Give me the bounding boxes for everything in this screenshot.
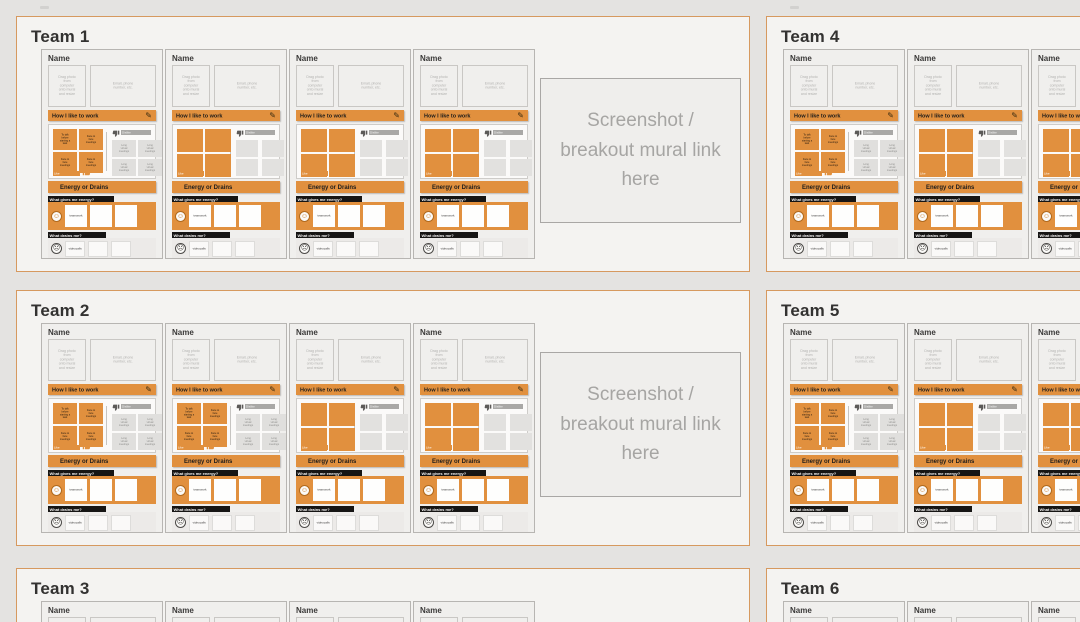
photo-dropzone[interactable]: Drag photo from computer onto mural and …	[48, 617, 86, 622]
dislike-sticky[interactable]: Long virtual meetings	[138, 140, 162, 157]
photo-dropzone[interactable]: Drag photo from computer onto mural and …	[914, 617, 952, 622]
how-i-like-to-work-bar[interactable]: How I like to work ✎	[420, 384, 528, 395]
member-card[interactable]: Name Drag photo from computer onto mural…	[165, 601, 287, 622]
like-sticky[interactable]: Face to face meetings	[821, 129, 845, 150]
work-preferences-panel[interactable]: To talk before starting a task Face to f…	[48, 124, 156, 179]
card-name-label[interactable]: Name	[48, 328, 156, 337]
thumbs-down-icon	[484, 404, 492, 412]
card-name-label[interactable]: Name	[790, 328, 898, 337]
dislike-sticky[interactable]: Long virtual meetings	[138, 414, 162, 431]
drain-sticky[interactable]	[460, 515, 480, 531]
drain-sticky[interactable]	[977, 515, 997, 531]
photo-dropzone[interactable]: Drag photo from computer onto mural and …	[790, 617, 828, 622]
card-name-label[interactable]: Name	[420, 54, 528, 63]
energy-sticky[interactable]	[956, 205, 978, 227]
energy-or-drains-bar[interactable]: Energy or Drains	[914, 181, 1022, 193]
dislike-label-bar: Dislike	[245, 130, 275, 135]
dislike-sticky[interactable]	[386, 433, 408, 450]
card-name-label[interactable]: Name	[1038, 606, 1080, 615]
member-card[interactable]: Name Drag photo from computer onto mural…	[907, 601, 1029, 622]
drain-sticky[interactable]	[88, 241, 108, 257]
like-legend: Like	[425, 167, 463, 176]
how-i-like-to-work-bar[interactable]: How I like to work ✎	[172, 110, 280, 121]
contact-field[interactable]: Email, phone number, etc.	[956, 339, 1022, 381]
dislike-label-bar: Dislike	[245, 404, 275, 409]
dislike-sticky[interactable]: Long virtual meetings	[880, 140, 904, 157]
like-sticky[interactable]	[329, 129, 355, 152]
dislike-sticky[interactable]	[386, 140, 408, 157]
energy-sticky[interactable]: teamwork	[931, 479, 953, 501]
card-name-label[interactable]: Name	[48, 606, 156, 615]
dislike-sticky[interactable]: Long virtual meetings	[262, 414, 286, 431]
contact-field[interactable]: Email, phone number, etc.	[214, 65, 280, 107]
card-name-label[interactable]: Name	[420, 328, 528, 337]
drain-sticky[interactable]: videocalls	[437, 241, 457, 257]
dislike-sticky[interactable]	[978, 140, 1000, 157]
energy-sticky[interactable]	[832, 479, 854, 501]
like-sticky[interactable]: Face to face meetings	[79, 129, 103, 150]
drain-sticky[interactable]	[853, 241, 873, 257]
card-name-label[interactable]: Name	[1038, 54, 1080, 63]
drain-panel: ☹ videocalls	[48, 512, 156, 533]
like-sticky[interactable]	[425, 403, 451, 426]
member-card[interactable]: Name Drag photo from computer onto mural…	[165, 49, 287, 259]
photo-dropzone[interactable]: Drag photo from computer onto mural and …	[420, 339, 458, 381]
member-card[interactable]: Name Drag photo from computer onto mural…	[289, 323, 411, 533]
screenshot-link-placeholder[interactable]: Screenshot / breakout mural link here	[540, 352, 741, 497]
card-name-label[interactable]: Name	[914, 328, 1022, 337]
drain-sticky[interactable]	[853, 515, 873, 531]
card-name-label[interactable]: Name	[296, 54, 404, 63]
like-sticky[interactable]: To talk before starting a task	[53, 129, 77, 150]
contact-field[interactable]: Email, phone number, etc.	[90, 617, 156, 622]
drain-sticky[interactable]	[359, 515, 379, 531]
drain-sticky[interactable]	[483, 515, 503, 531]
energy-sticky[interactable]	[214, 205, 236, 227]
dislike-sticky[interactable]	[360, 433, 382, 450]
like-sticky[interactable]	[1071, 129, 1080, 152]
dislike-sticky[interactable]	[262, 140, 284, 157]
photo-dropzone[interactable]: Drag photo from computer onto mural and …	[296, 617, 334, 622]
dislike-sticky[interactable]	[484, 159, 506, 176]
energy-sticky[interactable]	[214, 479, 236, 501]
member-card[interactable]: Name Drag photo from computer onto mural…	[1031, 49, 1080, 259]
like-sticky[interactable]	[919, 129, 945, 152]
how-i-like-to-work-bar[interactable]: How I like to work ✎	[296, 110, 404, 121]
contact-field[interactable]: Email, phone number, etc.	[338, 339, 404, 381]
energy-sticky[interactable]	[981, 205, 1003, 227]
dislike-sticky[interactable]: Long virtual meetings	[112, 433, 136, 450]
energy-sticky[interactable]	[956, 479, 978, 501]
like-sticky[interactable]	[1043, 129, 1069, 152]
energy-sticky[interactable]: teamwork	[1055, 479, 1077, 501]
card-name-label[interactable]: Name	[790, 54, 898, 63]
member-card[interactable]: Name Drag photo from computer onto mural…	[413, 323, 535, 533]
work-preferences-panel[interactable]: To talk before starting a task Face to f…	[172, 398, 280, 453]
photo-dropzone[interactable]: Drag photo from computer onto mural and …	[1038, 65, 1076, 107]
energy-or-drains-bar[interactable]: Energy or Drains	[420, 455, 528, 467]
energy-sticky[interactable]: teamwork	[807, 479, 829, 501]
photo-dropzone[interactable]: Drag photo from computer onto mural and …	[790, 339, 828, 381]
drain-sticky[interactable]	[88, 515, 108, 531]
photo-dropzone[interactable]: Drag photo from computer onto mural and …	[296, 65, 334, 107]
how-i-like-to-work-bar[interactable]: How I like to work ✎	[1038, 110, 1080, 121]
energy-sticky[interactable]	[462, 205, 484, 227]
dislike-sticky[interactable]: Long virtual meetings	[112, 140, 136, 157]
contact-field[interactable]: Email, phone number, etc.	[90, 65, 156, 107]
member-card[interactable]: Name Drag photo from computer onto mural…	[1031, 601, 1080, 622]
photo-dropzone[interactable]: Drag photo from computer onto mural and …	[914, 65, 952, 107]
drain-sticky[interactable]	[359, 241, 379, 257]
contact-field[interactable]: Email, phone number, etc.	[832, 65, 898, 107]
contact-field[interactable]: Email, phone number, etc.	[832, 339, 898, 381]
like-sticky[interactable]: To talk before starting a task	[177, 403, 201, 424]
energy-sticky[interactable]	[115, 205, 137, 227]
member-card[interactable]: Name Drag photo from computer onto mural…	[907, 323, 1029, 533]
energy-sticky[interactable]: teamwork	[189, 479, 211, 501]
work-preferences-panel[interactable]: Like Dislike	[420, 124, 528, 179]
contact-field[interactable]: Email, phone number, etc.	[832, 617, 898, 622]
energy-sticky[interactable]: teamwork	[189, 205, 211, 227]
card-name-label[interactable]: Name	[172, 606, 280, 615]
contact-field[interactable]: Email, phone number, etc.	[214, 617, 280, 622]
member-card[interactable]: Name Drag photo from computer onto mural…	[41, 49, 163, 259]
contact-field[interactable]: Email, phone number, etc.	[338, 65, 404, 107]
dislike-sticky[interactable]	[978, 159, 1000, 176]
energy-sticky[interactable]	[487, 205, 509, 227]
like-sticky[interactable]: Face to face meetings	[203, 403, 227, 424]
energy-sticky[interactable]	[487, 479, 509, 501]
energy-sticky[interactable]	[239, 479, 261, 501]
energy-sticky[interactable]	[338, 205, 360, 227]
work-preferences-panel[interactable]: Like Dislike	[296, 124, 404, 179]
energy-or-drains-bar[interactable]: Energy or Drains	[1038, 455, 1080, 467]
member-card[interactable]: Name Drag photo from computer onto mural…	[1031, 323, 1080, 533]
work-preferences-panel[interactable]: To talk before starting a task Face to f…	[790, 398, 898, 453]
photo-dropzone[interactable]: Drag photo from computer onto mural and …	[48, 65, 86, 107]
dislike-sticky[interactable]	[236, 159, 258, 176]
drain-sticky[interactable]: videocalls	[65, 241, 85, 257]
drain-sticky[interactable]: videocalls	[189, 515, 209, 531]
energy-or-drains-bar[interactable]: Energy or Drains	[914, 455, 1022, 467]
work-preferences-panel[interactable]: Like Dislike	[1038, 398, 1080, 453]
dislike-sticky[interactable]	[1004, 433, 1026, 450]
energy-sticky[interactable]	[857, 479, 879, 501]
frown-icon: ☹	[917, 243, 928, 254]
team-title[interactable]: Team 3	[31, 579, 90, 599]
drain-sticky[interactable]: videocalls	[65, 515, 85, 531]
drain-sticky[interactable]	[235, 241, 255, 257]
member-card[interactable]: Name Drag photo from computer onto mural…	[165, 323, 287, 533]
dislike-sticky[interactable]	[484, 414, 506, 431]
energy-sticky[interactable]	[239, 205, 261, 227]
dislike-sticky[interactable]	[360, 140, 382, 157]
card-name-label[interactable]: Name	[172, 328, 280, 337]
dislike-sticky[interactable]	[510, 433, 532, 450]
energy-sticky[interactable]	[363, 479, 385, 501]
like-sticky[interactable]	[453, 403, 479, 426]
like-sticky[interactable]	[947, 129, 973, 152]
like-sticky[interactable]	[919, 403, 945, 426]
dislike-sticky[interactable]	[386, 159, 408, 176]
like-sticky[interactable]	[329, 403, 355, 426]
drain-sticky[interactable]	[483, 241, 503, 257]
drain-sticky[interactable]	[111, 241, 131, 257]
dislike-label-bar: Dislike	[121, 130, 151, 135]
like-sticky[interactable]	[425, 129, 451, 152]
how-i-like-to-work-bar[interactable]: How I like to work ✎	[172, 384, 280, 395]
how-i-like-to-work-bar[interactable]: How I like to work ✎	[790, 110, 898, 121]
photo-dropzone[interactable]: Drag photo from computer onto mural and …	[914, 339, 952, 381]
dislike-sticky[interactable]	[978, 433, 1000, 450]
drain-sticky[interactable]	[111, 515, 131, 531]
drain-sticky[interactable]	[336, 515, 356, 531]
energy-or-drains-label: Energy or Drains	[1050, 184, 1080, 191]
energy-or-drains-bar[interactable]: Energy or Drains	[172, 181, 280, 193]
drain-sticky[interactable]	[235, 515, 255, 531]
member-card[interactable]: Name Drag photo from computer onto mural…	[41, 601, 163, 622]
dislike-sticky[interactable]	[510, 140, 532, 157]
energy-question-bar[interactable]: What gives me energy?	[1038, 196, 1080, 202]
like-sticky[interactable]: Face to face meetings	[821, 403, 845, 424]
contact-field[interactable]: Email, phone number, etc.	[462, 339, 528, 381]
like-legend: Like	[53, 441, 91, 450]
dislike-sticky[interactable]	[510, 414, 532, 431]
how-i-like-to-work-bar[interactable]: How I like to work ✎	[790, 384, 898, 395]
card-name-label[interactable]: Name	[1038, 328, 1080, 337]
energy-or-drains-bar[interactable]: Energy or Drains	[296, 455, 404, 467]
energy-question-bar[interactable]: What gives me energy?	[1038, 470, 1080, 476]
member-card[interactable]: Name Drag photo from computer onto mural…	[41, 323, 163, 533]
photo-dropzone[interactable]: Drag photo from computer onto mural and …	[172, 617, 210, 622]
how-i-like-to-work-bar[interactable]: How I like to work ✎	[48, 110, 156, 121]
drain-sticky[interactable]	[977, 241, 997, 257]
photo-dropzone[interactable]: Drag photo from computer onto mural and …	[1038, 617, 1076, 622]
work-preferences-panel[interactable]: Like Dislike	[172, 124, 280, 179]
drain-sticky[interactable]: videocalls	[807, 241, 827, 257]
work-preferences-panel[interactable]: Like Dislike	[914, 124, 1022, 179]
how-i-like-to-work-bar[interactable]: How I like to work ✎	[48, 384, 156, 395]
energy-sticky[interactable]: teamwork	[437, 205, 459, 227]
card-name-label[interactable]: Name	[914, 606, 1022, 615]
team-title[interactable]: Team 2	[31, 301, 90, 321]
photo-dropzone[interactable]: Drag photo from computer onto mural and …	[420, 617, 458, 622]
contact-field[interactable]: Email, phone number, etc.	[956, 65, 1022, 107]
energy-sticky[interactable]	[338, 479, 360, 501]
dislike-sticky[interactable]	[360, 159, 382, 176]
energy-or-drains-bar[interactable]: Energy or Drains	[420, 181, 528, 193]
drain-sticky[interactable]: videocalls	[313, 515, 333, 531]
card-name-label[interactable]: Name	[420, 606, 528, 615]
dislike-sticky[interactable]: Long virtual meetings	[112, 159, 136, 176]
photo-dropzone[interactable]: Drag photo from computer onto mural and …	[172, 339, 210, 381]
like-sticky[interactable]: To talk before starting a task	[795, 129, 819, 150]
drain-sticky[interactable]	[830, 515, 850, 531]
card-name-label[interactable]: Name	[48, 54, 156, 63]
energy-or-drains-bar[interactable]: Energy or Drains	[790, 455, 898, 467]
drain-sticky[interactable]: videocalls	[931, 241, 951, 257]
work-preferences-panel[interactable]: Like Dislike	[1038, 124, 1080, 179]
contact-field[interactable]: Email, phone number, etc.	[90, 339, 156, 381]
like-sticky[interactable]: To talk before starting a task	[53, 403, 77, 424]
dislike-sticky[interactable]: Long virtual meetings	[880, 414, 904, 431]
how-i-like-to-work-bar[interactable]: How I like to work ✎	[296, 384, 404, 395]
contact-placeholder-text: Email, phone number, etc.	[849, 82, 881, 90]
like-label-chip: Like	[177, 445, 204, 450]
card-name-label[interactable]: Name	[172, 54, 280, 63]
work-preferences-panel[interactable]: Like Dislike	[296, 398, 404, 453]
drain-sticky[interactable]	[336, 241, 356, 257]
member-card[interactable]: Name Drag photo from computer onto mural…	[413, 49, 535, 259]
dislike-sticky[interactable]	[1004, 159, 1026, 176]
dislike-sticky[interactable]: Long virtual meetings	[138, 433, 162, 450]
energy-or-drains-bar[interactable]: Energy or Drains	[1038, 181, 1080, 193]
energy-sticky[interactable]: teamwork	[313, 205, 335, 227]
photo-dropzone[interactable]: Drag photo from computer onto mural and …	[1038, 339, 1076, 381]
card-name-label[interactable]: Name	[790, 606, 898, 615]
like-sticky[interactable]	[301, 403, 327, 426]
drain-sticky[interactable]: videocalls	[807, 515, 827, 531]
drain-sticky[interactable]: videocalls	[1055, 515, 1075, 531]
contact-field[interactable]: Email, phone number, etc.	[462, 617, 528, 622]
contact-field[interactable]: Email, phone number, etc.	[214, 339, 280, 381]
drain-sticky[interactable]: videocalls	[189, 241, 209, 257]
energy-sticky[interactable]: teamwork	[437, 479, 459, 501]
dislike-sticky[interactable]: Long virtual meetings	[236, 433, 260, 450]
contact-field[interactable]: Email, phone number, etc.	[956, 617, 1022, 622]
photo-dropzone[interactable]: Drag photo from computer onto mural and …	[48, 339, 86, 381]
like-sticky[interactable]	[947, 403, 973, 426]
energy-sticky[interactable]	[857, 205, 879, 227]
dislike-sticky[interactable]	[262, 159, 284, 176]
energy-or-drains-bar[interactable]: Energy or Drains	[172, 455, 280, 467]
energy-sticky[interactable]: teamwork	[65, 479, 87, 501]
contact-field[interactable]: Email, phone number, etc.	[338, 617, 404, 622]
drain-sticky[interactable]	[460, 241, 480, 257]
energy-sticky[interactable]	[90, 479, 112, 501]
dislike-sticky[interactable]	[510, 159, 532, 176]
energy-sticky[interactable]: teamwork	[931, 205, 953, 227]
dislike-sticky[interactable]	[236, 140, 258, 157]
drain-sticky[interactable]	[954, 515, 974, 531]
energy-sticky[interactable]	[363, 205, 385, 227]
like-sticky[interactable]	[177, 129, 203, 152]
dislike-label-bar: Dislike	[987, 130, 1017, 135]
photo-dropzone[interactable]: Drag photo from computer onto mural and …	[296, 339, 334, 381]
like-label-chip: Like	[425, 171, 452, 176]
dislike-sticky[interactable]	[484, 140, 506, 157]
team-title[interactable]: Team 1	[31, 27, 90, 47]
dislike-sticky[interactable]: Long virtual meetings	[138, 159, 162, 176]
like-sticky[interactable]	[205, 129, 231, 152]
member-card[interactable]: Name Drag photo from computer onto mural…	[783, 49, 905, 259]
like-sticky[interactable]	[1071, 403, 1080, 426]
member-card[interactable]: Name Drag photo from computer onto mural…	[289, 601, 411, 622]
dislike-sticky[interactable]	[978, 414, 1000, 431]
energy-sticky[interactable]	[981, 479, 1003, 501]
energy-or-drains-bar[interactable]: Energy or Drains	[790, 181, 898, 193]
energy-sticky[interactable]	[462, 479, 484, 501]
work-preferences-panel[interactable]: To talk before starting a task Face to f…	[790, 124, 898, 179]
drain-sticky[interactable]	[830, 241, 850, 257]
dislike-sticky[interactable]: Long virtual meetings	[112, 414, 136, 431]
like-sticky[interactable]	[301, 129, 327, 152]
energy-sticky[interactable]	[832, 205, 854, 227]
work-preferences-panel[interactable]: To talk before starting a task Face to f…	[48, 398, 156, 453]
energy-sticky[interactable]	[90, 205, 112, 227]
drain-sticky[interactable]	[954, 241, 974, 257]
card-name-label[interactable]: Name	[296, 328, 404, 337]
energy-sticky[interactable]: teamwork	[1055, 205, 1077, 227]
team-title[interactable]: Team 6	[781, 579, 840, 599]
energy-or-drains-bar[interactable]: Energy or Drains	[296, 181, 404, 193]
drain-sticky[interactable]: videocalls	[313, 241, 333, 257]
contact-field[interactable]: Email, phone number, etc.	[462, 65, 528, 107]
dislike-sticky[interactable]	[386, 414, 408, 431]
dislike-sticky[interactable]: Long virtual meetings	[854, 433, 878, 450]
like-sticky[interactable]	[1043, 403, 1069, 426]
energy-sticky[interactable]: teamwork	[313, 479, 335, 501]
dislike-sticky[interactable]: Long virtual meetings	[262, 433, 286, 450]
team-title[interactable]: Team 5	[781, 301, 840, 321]
drain-sticky[interactable]: videocalls	[931, 515, 951, 531]
dislike-sticky[interactable]: Long virtual meetings	[880, 433, 904, 450]
dislike-sticky[interactable]: Long virtual meetings	[854, 140, 878, 157]
screenshot-link-placeholder[interactable]: Screenshot / breakout mural link here	[540, 78, 741, 223]
how-i-like-to-work-bar[interactable]: How I like to work ✎	[1038, 384, 1080, 395]
dislike-sticky[interactable]	[1004, 140, 1026, 157]
contact-placeholder-text: Email, phone number, etc.	[231, 356, 263, 364]
member-card[interactable]: Name Drag photo from computer onto mural…	[413, 601, 535, 622]
dislike-sticky[interactable]: Long virtual meetings	[854, 159, 878, 176]
like-sticky[interactable]: Face to face meetings	[79, 403, 103, 424]
work-preferences-panel[interactable]: Like Dislike	[914, 398, 1022, 453]
like-sticky[interactable]	[453, 129, 479, 152]
energy-or-drains-bar[interactable]: Energy or Drains	[48, 181, 156, 193]
dislike-sticky[interactable]	[360, 414, 382, 431]
dislike-sticky[interactable]: Long virtual meetings	[880, 159, 904, 176]
drain-sticky[interactable]: videocalls	[437, 515, 457, 531]
card-name-label[interactable]: Name	[296, 606, 404, 615]
member-card[interactable]: Name Drag photo from computer onto mural…	[907, 49, 1029, 259]
member-card[interactable]: Name Drag photo from computer onto mural…	[289, 49, 411, 259]
photo-dropzone[interactable]: Drag photo from computer onto mural and …	[790, 65, 828, 107]
dislike-sticky[interactable]: Long virtual meetings	[854, 414, 878, 431]
card-name-label[interactable]: Name	[914, 54, 1022, 63]
team-title[interactable]: Team 4	[781, 27, 840, 47]
how-i-like-to-work-bar[interactable]: How I like to work ✎	[420, 110, 528, 121]
identity-row: Drag photo from computer onto mural and …	[296, 617, 404, 622]
work-preferences-panel[interactable]: Like Dislike	[420, 398, 528, 453]
energy-sticky[interactable]	[115, 479, 137, 501]
photo-dropzone[interactable]: Drag photo from computer onto mural and …	[420, 65, 458, 107]
energy-or-drains-bar[interactable]: Energy or Drains	[48, 455, 156, 467]
drain-sticky[interactable]	[212, 241, 232, 257]
photo-dropzone[interactable]: Drag photo from computer onto mural and …	[172, 65, 210, 107]
drain-sticky[interactable]	[212, 515, 232, 531]
dislike-sticky[interactable]	[484, 433, 506, 450]
how-i-like-to-work-bar[interactable]: How I like to work ✎	[914, 110, 1022, 121]
dislike-sticky[interactable]: Long virtual meetings	[236, 414, 260, 431]
member-card[interactable]: Name Drag photo from computer onto mural…	[783, 323, 905, 533]
energy-sticky[interactable]: teamwork	[807, 205, 829, 227]
like-sticky[interactable]: To talk before starting a task	[795, 403, 819, 424]
dislike-sticky[interactable]	[1004, 414, 1026, 431]
how-i-like-to-work-bar[interactable]: How I like to work ✎	[914, 384, 1022, 395]
drain-sticky[interactable]: videocalls	[1055, 241, 1075, 257]
energy-sticky[interactable]: teamwork	[65, 205, 87, 227]
member-card[interactable]: Name Drag photo from computer onto mural…	[783, 601, 905, 622]
